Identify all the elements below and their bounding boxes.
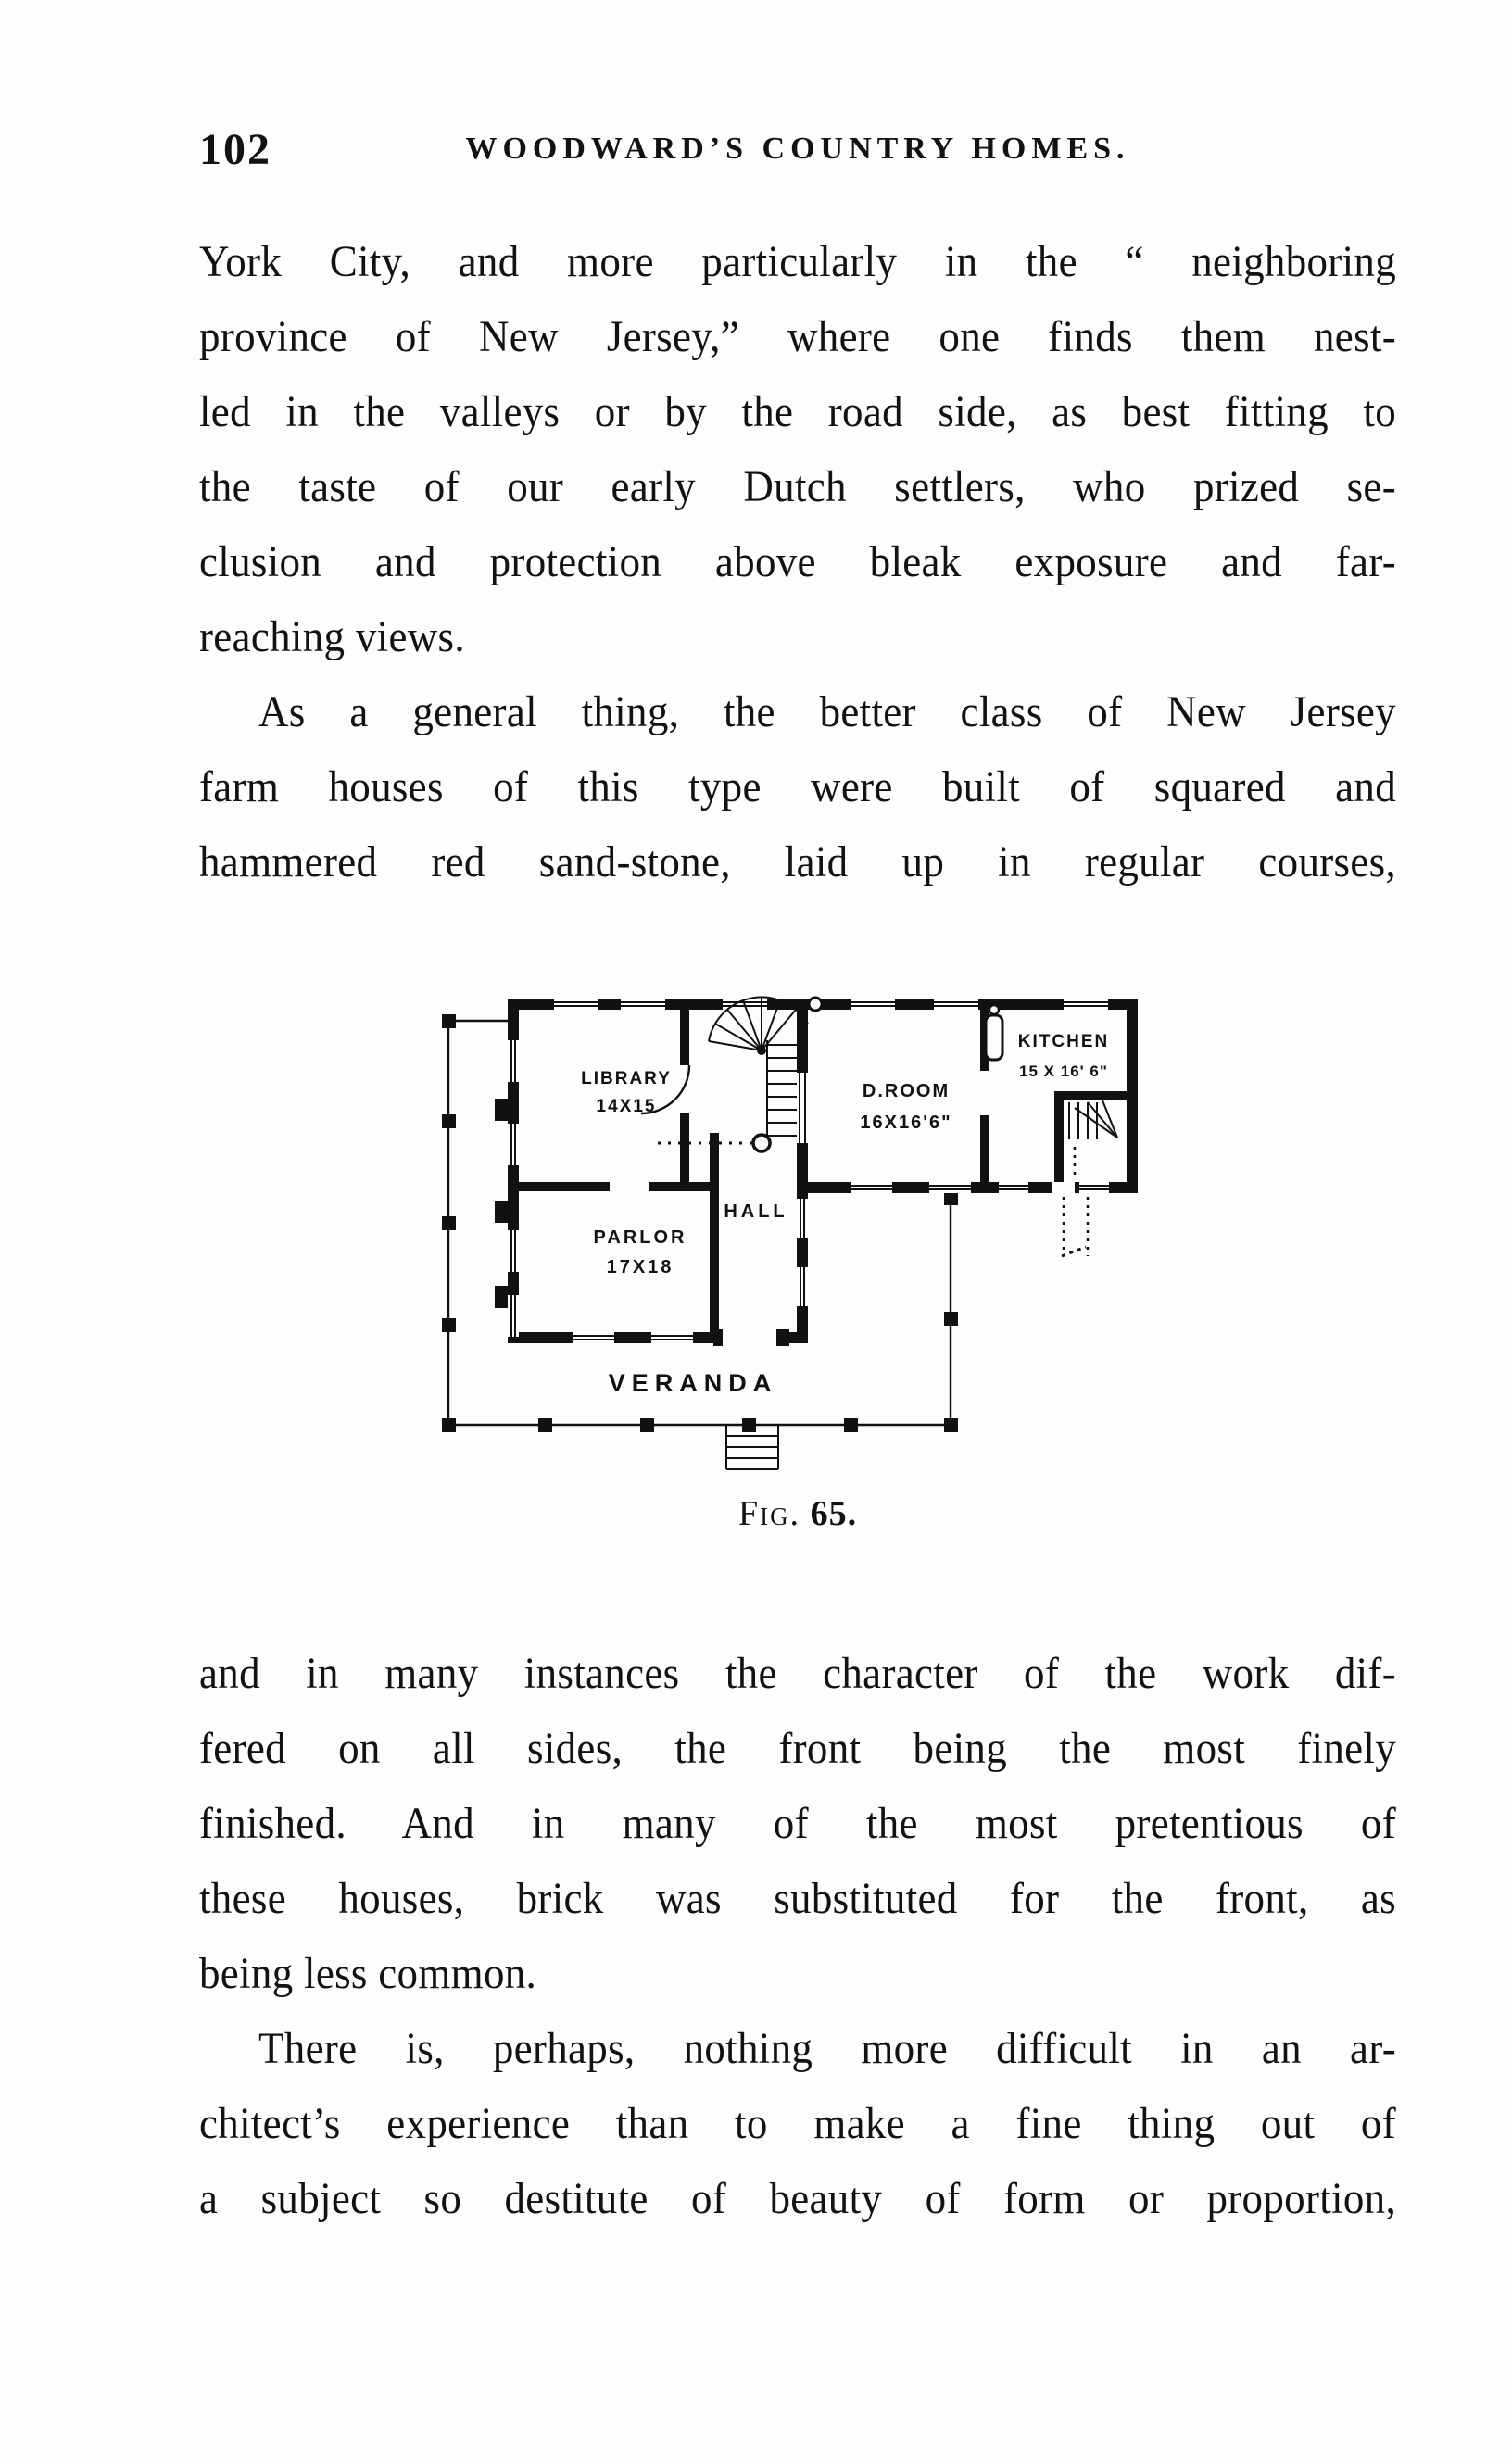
figure-caption: Fig. 65. <box>199 1493 1396 1534</box>
text-line: chitect’s experience than to make a fine… <box>199 2084 1396 2164</box>
dining-room-label: D.ROOM <box>863 1081 950 1101</box>
running-title: WOODWARD’S COUNTRY HOMES. <box>199 124 1396 167</box>
floor-plan-figure: LIBRARY 14X15 PARLOR 17X18 HALL D.ROOM 1… <box>415 962 1149 1486</box>
text-block-upper: York City, and more particularly in the … <box>199 224 1396 899</box>
text-line: York City, and more particularly in the … <box>199 222 1396 302</box>
text-line: being less common. <box>199 1934 1396 2014</box>
text-line: There is, perhaps, nothing more difficul… <box>199 2009 1396 2089</box>
text-line: these houses, brick was substituted for … <box>199 1859 1396 1939</box>
kitchen-dims: 15 X 16' 6" <box>1019 1062 1108 1080</box>
kitchen-label: KITCHEN <box>1018 1032 1109 1051</box>
figure-caption-number: 65. <box>811 1494 858 1533</box>
text-line: the taste of our early Dutch settlers, w… <box>199 447 1396 527</box>
library-label: LIBRARY <box>581 1069 672 1088</box>
page-number: 102 <box>199 124 271 175</box>
text-block-lower: and in many instances the character of t… <box>199 1636 1396 2236</box>
parlor-dims: 17X18 <box>607 1257 674 1277</box>
text-line: farm houses of this type were built of s… <box>199 748 1396 827</box>
text-line: clusion and protection above bleak expos… <box>199 522 1396 602</box>
text-line: province of New Jersey,” where one finds… <box>199 297 1396 377</box>
page-header: 102 WOODWARD’S COUNTRY HOMES. <box>199 124 1396 189</box>
veranda-label: VERANDA <box>609 1369 778 1397</box>
text-line: reaching views. <box>199 597 1396 677</box>
library-dims: 14X15 <box>597 1097 657 1116</box>
text-line: fered on all sides, the front being the … <box>199 1709 1396 1789</box>
text-line: led in the valleys or by the road side, … <box>199 372 1396 452</box>
floor-plan-drawing: LIBRARY 14X15 PARLOR 17X18 HALL D.ROOM 1… <box>415 962 1149 1486</box>
text-line: As a general thing, the better class of … <box>199 673 1396 752</box>
back-stair <box>1062 1100 1117 1256</box>
figure-caption-label: Fig. <box>738 1494 800 1533</box>
text-line: a subject so destitute of beauty of form… <box>199 2159 1396 2239</box>
text-line: and in many instances the character of t… <box>199 1634 1396 1714</box>
dining-room-dims: 16X16'6" <box>860 1113 951 1133</box>
hall-stair <box>654 997 808 1151</box>
book-page: 102 WOODWARD’S COUNTRY HOMES. York City,… <box>0 0 1512 2464</box>
text-line: finished. And in many of the most preten… <box>199 1784 1396 1864</box>
parlor-label: PARLOR <box>594 1227 687 1248</box>
hall-label: HALL <box>724 1201 787 1222</box>
text-line: hammered red sand-stone, laid up in regu… <box>199 823 1396 902</box>
